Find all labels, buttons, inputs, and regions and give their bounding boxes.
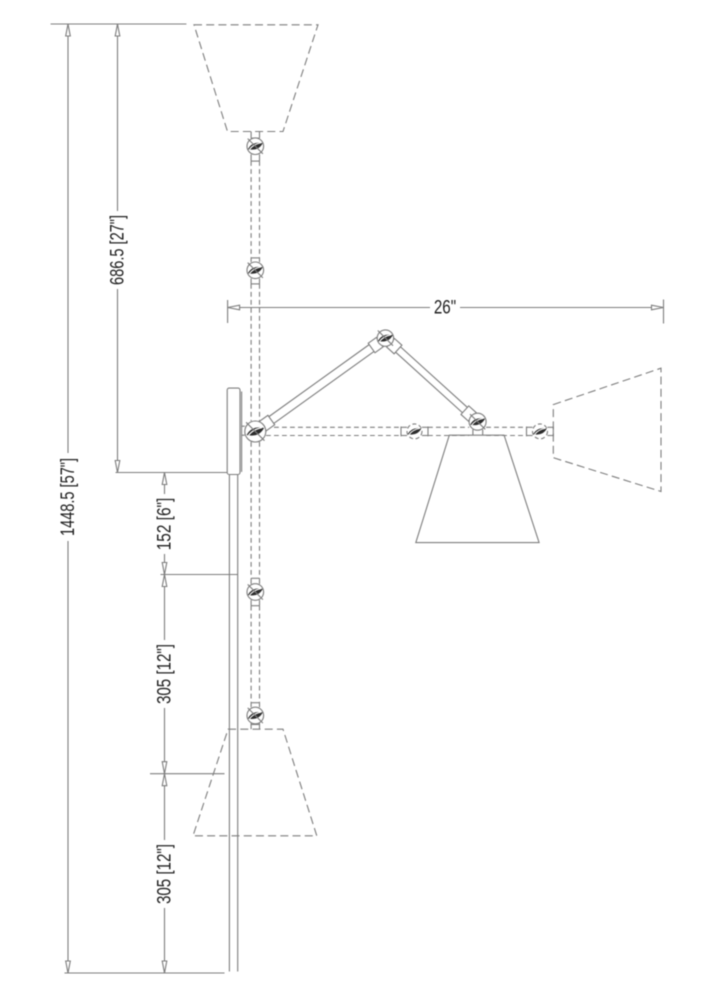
svg-text:152 [6"]: 152 [6"]: [155, 498, 176, 551]
svg-text:305 [12"]: 305 [12"]: [155, 844, 176, 904]
svg-text:686.5 [27"]: 686.5 [27"]: [108, 215, 129, 285]
svg-text:305 [12"]: 305 [12"]: [155, 644, 176, 704]
svg-text:26": 26": [434, 298, 456, 319]
svg-text:1448.5 [57"]: 1448.5 [57"]: [58, 458, 79, 536]
